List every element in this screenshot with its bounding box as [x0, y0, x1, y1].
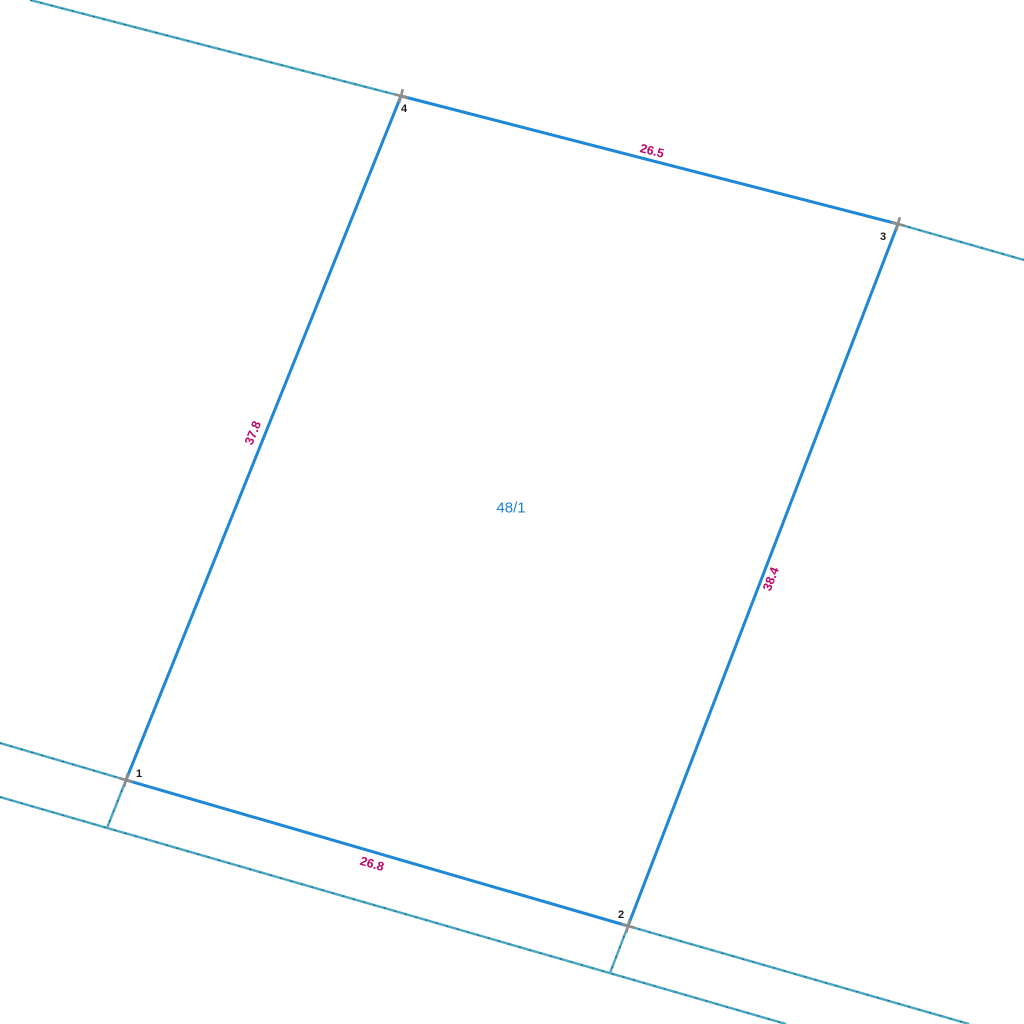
cross-icon — [896, 217, 900, 231]
vertex-number-label-4: 4 — [401, 103, 408, 115]
cross-icon — [626, 919, 630, 933]
cross-icon — [399, 89, 403, 103]
labels-layer: 123426.538.426.837.848/1 — [136, 103, 886, 921]
map-svg[interactable]: 123426.538.426.837.848/1 — [0, 0, 1024, 1024]
parcel-edge-4-3[interactable] — [401, 96, 898, 224]
vertex-number-label-3: 3 — [880, 231, 886, 243]
parcel-edge-4-1[interactable] — [126, 96, 401, 780]
adjacent-boundary-line-bottom-boundary-extension-right — [628, 926, 969, 1024]
dimension-label-3-2: 38.4 — [760, 565, 782, 593]
vertex-number-label-2: 2 — [618, 909, 624, 921]
adjacent-boundary-line-right-edge-extension-below-2 — [610, 926, 628, 973]
adjacent-boundary-line-lower-road-line — [0, 797, 786, 1024]
vertex-marker-1[interactable] — [117, 771, 134, 788]
dimension-label-1-2: 26.8 — [358, 854, 385, 874]
parcel-edge-3-2[interactable] — [628, 224, 898, 926]
map-viewport[interactable]: 123426.538.426.837.848/1 — [0, 0, 1024, 1024]
parcel-id-label[interactable]: 48/1 — [496, 500, 525, 517]
parcel-edge-1-2[interactable] — [126, 780, 628, 926]
cross-icon — [124, 773, 128, 787]
vertex-number-label-1: 1 — [136, 768, 142, 780]
